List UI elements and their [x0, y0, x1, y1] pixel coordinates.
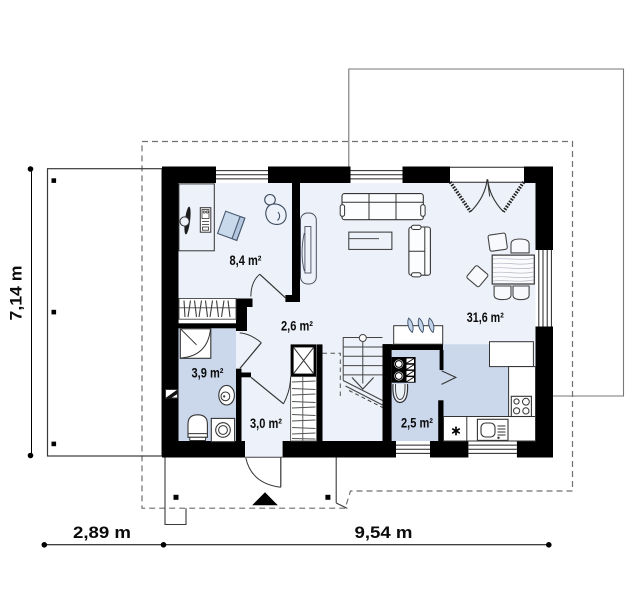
svg-text:7,14 m: 7,14 m	[8, 266, 26, 321]
svg-text:2,5 m²: 2,5 m²	[401, 414, 433, 430]
svg-text:2,89 m: 2,89 m	[73, 524, 131, 542]
svg-text:31,6 m²: 31,6 m²	[467, 309, 504, 325]
svg-text:9,54 m: 9,54 m	[355, 524, 413, 542]
svg-text:3,9 m²: 3,9 m²	[192, 365, 224, 381]
svg-text:8,4 m²: 8,4 m²	[230, 252, 262, 268]
svg-text:2,6 m²: 2,6 m²	[281, 318, 313, 334]
svg-text:3,0 m²: 3,0 m²	[250, 415, 282, 431]
